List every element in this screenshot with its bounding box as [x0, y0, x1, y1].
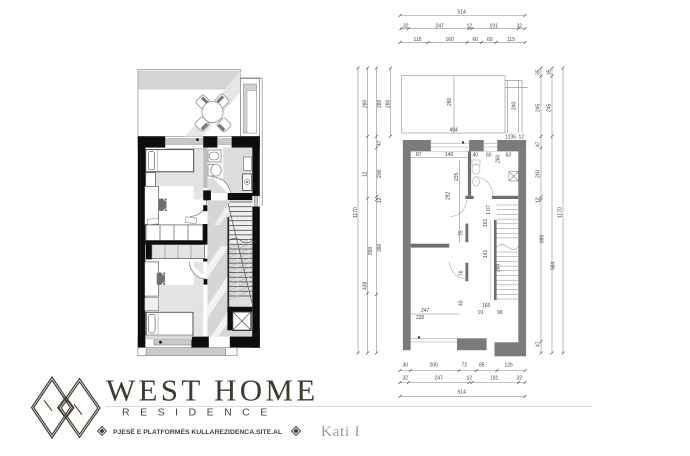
svg-text:264: 264 [496, 263, 502, 272]
svg-text:220: 220 [416, 315, 425, 321]
svg-text:85: 85 [479, 363, 485, 369]
svg-text:240: 240 [512, 101, 518, 110]
svg-text:280: 280 [447, 97, 453, 106]
svg-text:200: 200 [536, 169, 542, 178]
svg-text:160: 160 [446, 37, 455, 43]
svg-text:584: 584 [551, 261, 557, 270]
svg-text:191: 191 [490, 376, 499, 382]
svg-text:76: 76 [459, 270, 465, 276]
svg-text:63: 63 [506, 153, 512, 159]
svg-text:47: 47 [377, 140, 383, 146]
svg-text:140: 140 [445, 152, 454, 158]
svg-text:235: 235 [454, 172, 460, 181]
svg-text:47: 47 [536, 141, 542, 147]
svg-text:75: 75 [459, 230, 465, 236]
svg-text:60: 60 [487, 37, 493, 43]
svg-text:247: 247 [435, 376, 444, 382]
svg-text:RESIDENCE: RESIDENCE [122, 407, 278, 419]
svg-text:72: 72 [462, 363, 468, 369]
svg-text:165: 165 [482, 303, 491, 309]
svg-text:280: 280 [362, 99, 368, 108]
svg-text:247: 247 [421, 308, 430, 314]
svg-text:91: 91 [478, 310, 484, 316]
svg-text:292: 292 [446, 191, 452, 200]
svg-text:32: 32 [517, 376, 523, 382]
svg-text:200: 200 [377, 169, 383, 178]
svg-text:245: 245 [547, 103, 553, 112]
svg-text:141: 141 [483, 249, 489, 258]
svg-text:890: 890 [368, 246, 374, 255]
svg-text:35: 35 [536, 69, 542, 75]
svg-text:390: 390 [377, 243, 383, 252]
svg-text:514: 514 [458, 10, 467, 16]
svg-text:404: 404 [450, 128, 459, 134]
svg-text:439: 439 [362, 281, 368, 290]
svg-text:280: 280 [377, 99, 383, 108]
svg-text:40: 40 [473, 153, 479, 159]
svg-text:35: 35 [547, 69, 553, 75]
svg-text:1170: 1170 [558, 207, 564, 218]
svg-text:12: 12 [467, 376, 473, 382]
svg-text:1.07: 1.07 [486, 205, 492, 215]
svg-text:40: 40 [459, 300, 465, 306]
svg-text:115: 115 [414, 37, 422, 43]
svg-text:PJESË E PLATFORMËS KULLAREZIDE: PJESË E PLATFORMËS KULLAREZIDENCA.SITE.A… [113, 428, 282, 436]
svg-text:Kati I: Kati I [321, 424, 360, 440]
svg-text:60: 60 [473, 37, 479, 43]
svg-text:60: 60 [486, 153, 492, 159]
svg-text:280: 280 [385, 99, 391, 108]
svg-text:12: 12 [362, 171, 368, 177]
svg-text:245: 245 [536, 103, 542, 112]
svg-text:514: 514 [458, 390, 467, 396]
svg-text:32: 32 [403, 376, 409, 382]
svg-text:87: 87 [416, 152, 422, 158]
svg-text:12: 12 [377, 197, 383, 203]
svg-text:12: 12 [519, 135, 525, 141]
svg-text:WEST HOME: WEST HOME [106, 373, 319, 408]
svg-text:126: 126 [505, 363, 514, 369]
svg-text:161: 161 [483, 218, 489, 227]
svg-text:47: 47 [536, 341, 542, 347]
svg-text:260: 260 [496, 154, 502, 163]
svg-text:890: 890 [540, 234, 546, 243]
svg-text:99: 99 [497, 310, 503, 316]
svg-text:30: 30 [403, 363, 409, 369]
svg-text:12: 12 [536, 197, 542, 203]
svg-text:35: 35 [511, 135, 517, 141]
svg-text:115: 115 [507, 37, 515, 43]
svg-text:200: 200 [430, 363, 439, 369]
svg-text:1170: 1170 [353, 207, 359, 218]
